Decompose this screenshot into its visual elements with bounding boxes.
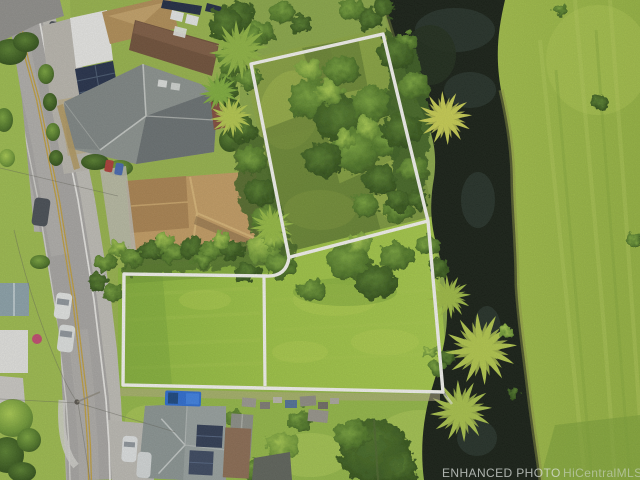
svg-text:ENHANCED PHOTO: ENHANCED PHOTO: [442, 466, 561, 480]
svg-text:HiCentralMLS: HiCentralMLS: [563, 466, 640, 480]
